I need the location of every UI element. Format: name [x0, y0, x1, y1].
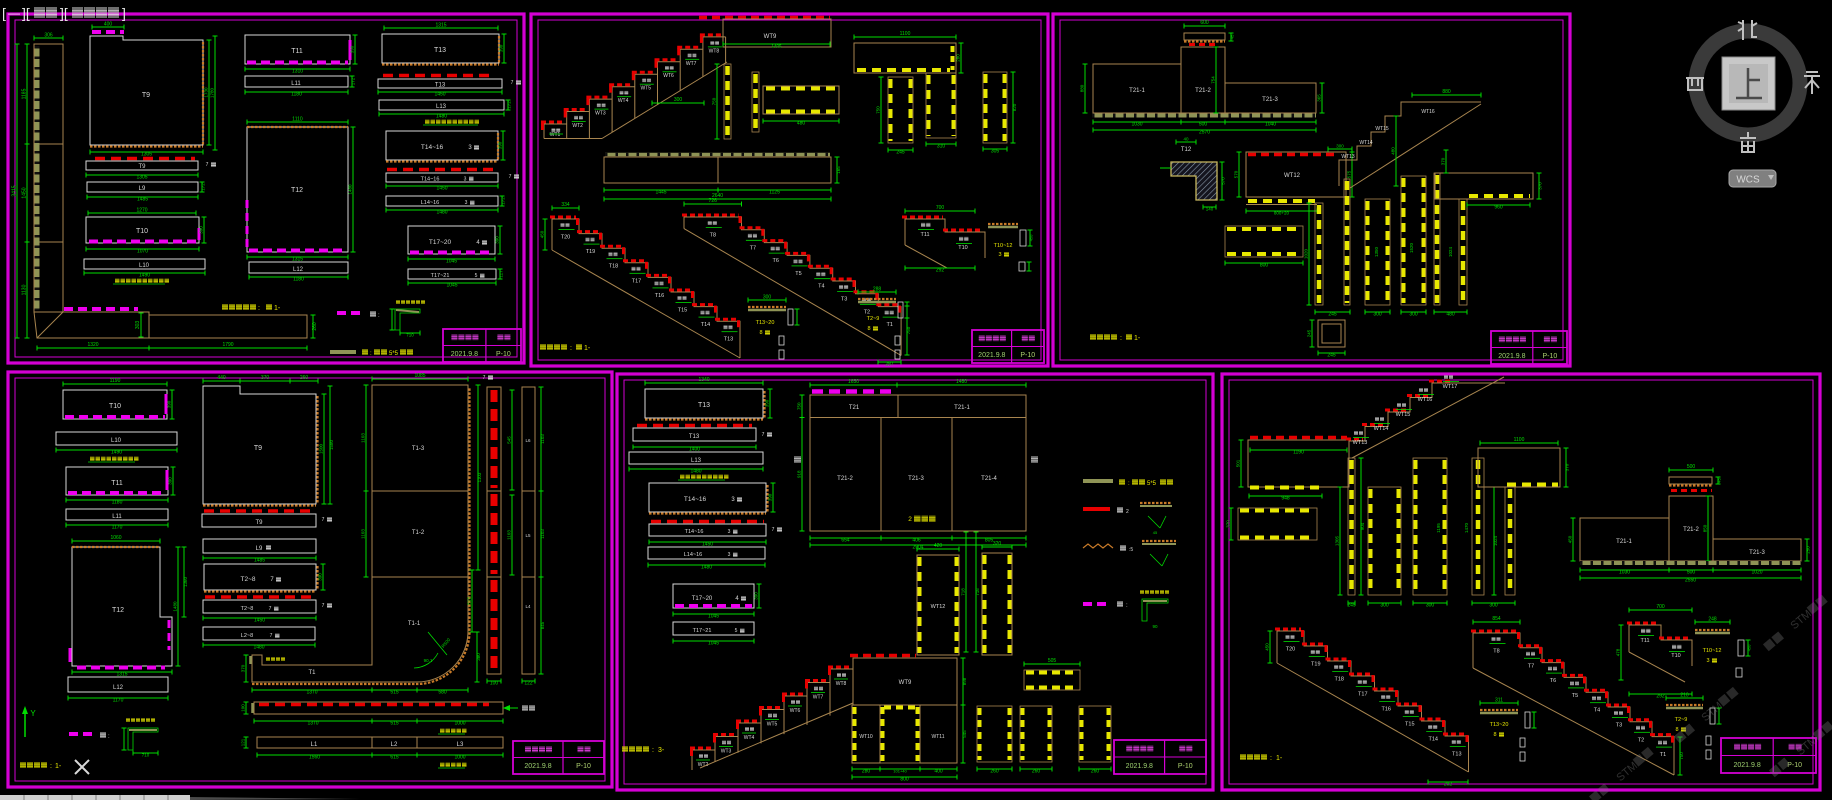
svg-text:710: 710: [142, 753, 150, 758]
svg-text:WT16: WT16: [1418, 397, 1433, 403]
svg-text:390: 390: [498, 141, 503, 149]
svg-text:T1-1: T1-1: [408, 621, 421, 627]
svg-text:1103: 1103: [361, 433, 366, 443]
svg-text:L13: L13: [436, 104, 447, 110]
svg-text:292: 292: [1656, 694, 1665, 700]
svg-text:245: 245: [1347, 603, 1356, 609]
svg-text:334: 334: [561, 202, 570, 208]
svg-text:1780: 1780: [210, 87, 215, 98]
svg-text:T13: T13: [698, 402, 710, 409]
svg-text:1480: 1480: [348, 184, 353, 195]
svg-text:1180: 1180: [112, 500, 123, 506]
svg-text:T17: T17: [632, 278, 641, 284]
svg-text:800+20: 800+20: [1274, 211, 1290, 216]
svg-text:600: 600: [1200, 20, 1209, 26]
svg-text:545: 545: [962, 730, 967, 738]
svg-text:T6: T6: [772, 258, 778, 264]
svg-text:T4: T4: [1594, 708, 1600, 714]
svg-text:1103: 1103: [477, 472, 482, 482]
svg-text:1170: 1170: [113, 698, 124, 704]
svg-text:505: 505: [1048, 658, 1057, 664]
svg-text:480: 480: [797, 121, 806, 127]
svg-text:172: 172: [507, 101, 512, 109]
svg-text:T17~21: T17~21: [693, 628, 712, 634]
svg-text:8: 8: [1493, 732, 1496, 738]
svg-text:1305: 1305: [141, 152, 152, 158]
svg-text:T2: T2: [1638, 737, 1644, 743]
svg-text:90: 90: [1152, 624, 1158, 629]
svg-text:948: 948: [1281, 496, 1290, 502]
svg-text:T13: T13: [689, 434, 700, 440]
svg-text:[: [: [2, 5, 6, 21]
svg-text:305: 305: [991, 149, 1000, 155]
svg-text:1103: 1103: [361, 529, 366, 539]
svg-text:370: 370: [261, 375, 270, 381]
svg-text:101+40: 101+40: [893, 769, 907, 774]
svg-text:2021.9.8: 2021.9.8: [978, 352, 1005, 359]
svg-text:480: 480: [1446, 312, 1455, 318]
svg-text:WT13: WT13: [1341, 154, 1355, 160]
svg-text:500: 500: [1687, 464, 1696, 470]
svg-text:320: 320: [993, 541, 1002, 547]
svg-text:T17~20: T17~20: [429, 239, 452, 246]
svg-text:654: 654: [841, 538, 850, 544]
svg-text:750: 750: [712, 97, 717, 105]
svg-text:L11: L11: [291, 81, 301, 87]
svg-text:T1: T1: [886, 322, 892, 328]
svg-text:T2: T2: [864, 309, 870, 315]
svg-text:245: 245: [1328, 312, 1337, 318]
svg-text:172: 172: [351, 77, 356, 85]
svg-text::: :: [1120, 335, 1122, 342]
svg-text:T15: T15: [678, 308, 687, 314]
svg-text:1445: 1445: [655, 190, 666, 196]
svg-text:250: 250: [1806, 546, 1811, 554]
svg-text:T13: T13: [434, 47, 446, 54]
svg-text:300: 300: [1380, 603, 1389, 609]
svg-text:300: 300: [1336, 144, 1344, 149]
svg-text:WT14: WT14: [1374, 426, 1389, 432]
svg-text:1360: 1360: [183, 576, 188, 587]
svg-text:1315: 1315: [435, 23, 446, 29]
svg-text:245: 245: [896, 150, 905, 156]
svg-text:L12: L12: [293, 267, 304, 273]
svg-text:3: 3: [998, 252, 1001, 258]
svg-text:1370: 1370: [306, 690, 317, 696]
svg-text:7: 7: [772, 527, 775, 533]
svg-text:5: 5: [735, 628, 738, 634]
svg-text:513: 513: [467, 597, 472, 605]
svg-text:292: 292: [1444, 782, 1453, 788]
svg-text:L10: L10: [111, 438, 122, 444]
svg-text:710: 710: [406, 333, 414, 338]
svg-text:T17: T17: [1358, 692, 1367, 698]
svg-text:T14~16: T14~16: [421, 177, 440, 183]
svg-text:390: 390: [754, 592, 759, 600]
svg-text:754: 754: [1211, 76, 1216, 84]
svg-text:45: 45: [1153, 530, 1158, 535]
svg-text:2904: 2904: [912, 545, 923, 551]
svg-text:T14: T14: [1428, 737, 1437, 743]
svg-text:WT4: WT4: [618, 98, 629, 104]
svg-text:L5: L5: [525, 533, 531, 538]
svg-text:P-10: P-10: [1543, 353, 1558, 360]
svg-text:390: 390: [318, 573, 323, 581]
svg-text:WT1: WT1: [550, 132, 561, 138]
svg-text:][: ][: [22, 5, 30, 21]
svg-text:2: 2: [1126, 509, 1129, 515]
svg-text:T10: T10: [1671, 653, 1680, 659]
svg-text:450: 450: [1568, 535, 1573, 543]
svg-text:380: 380: [476, 653, 481, 661]
svg-text:2570: 2570: [1199, 130, 1210, 136]
svg-text:T21-2: T21-2: [1683, 527, 1699, 533]
svg-text:450: 450: [1265, 643, 1270, 651]
svg-text:287: 287: [885, 362, 894, 368]
svg-text::: :: [1270, 755, 1272, 762]
svg-text:750: 750: [906, 326, 911, 334]
svg-text:T11: T11: [291, 48, 303, 55]
svg-text:1180: 1180: [293, 277, 304, 283]
svg-text:1730: 1730: [204, 87, 209, 98]
svg-text:2550: 2550: [1685, 578, 1696, 584]
svg-text:WT3: WT3: [595, 111, 606, 117]
svg-text:1405: 1405: [771, 44, 782, 49]
svg-text:T9: T9: [142, 92, 150, 99]
svg-text:1180: 1180: [291, 92, 302, 98]
svg-text:1450: 1450: [434, 92, 445, 98]
svg-text:1790: 1790: [222, 342, 233, 348]
svg-text:406: 406: [912, 538, 921, 544]
svg-text:T1: T1: [1660, 752, 1666, 758]
svg-text:2: 2: [908, 516, 912, 523]
svg-text:8: 8: [1675, 727, 1678, 733]
svg-text:T1-2: T1-2: [412, 530, 425, 536]
svg-text:T14~16: T14~16: [421, 144, 444, 151]
svg-text:P-10: P-10: [496, 351, 511, 358]
svg-text:3: 3: [728, 552, 731, 558]
svg-text:300: 300: [1409, 312, 1418, 318]
svg-text:1103: 1103: [540, 529, 545, 539]
svg-text:1370: 1370: [307, 721, 318, 727]
svg-text:718: 718: [961, 588, 966, 596]
svg-text:WT16: WT16: [1421, 109, 1435, 115]
svg-text:898: 898: [962, 677, 967, 685]
svg-text:880: 880: [1442, 89, 1451, 95]
svg-text:1305: 1305: [1335, 535, 1340, 546]
svg-text:1480: 1480: [173, 601, 178, 612]
svg-text:1030: 1030: [1619, 570, 1630, 576]
svg-text:300: 300: [763, 295, 772, 301]
svg-text:1125: 1125: [769, 190, 780, 196]
svg-text:1480: 1480: [956, 379, 967, 385]
svg-text:1485: 1485: [137, 197, 148, 203]
svg-text:P-10: P-10: [1787, 762, 1802, 769]
svg-text:1020: 1020: [1751, 570, 1762, 576]
svg-text:1000: 1000: [454, 755, 465, 761]
svg-text:420: 420: [934, 543, 943, 549]
svg-text:1045: 1045: [708, 641, 719, 647]
svg-text:1060: 1060: [110, 535, 121, 541]
svg-text:P-10: P-10: [1020, 352, 1035, 359]
svg-text:WT6: WT6: [663, 73, 674, 79]
svg-text:T18: T18: [1334, 677, 1343, 683]
svg-text:3: 3: [465, 200, 468, 206]
svg-text:—: —: [8, 6, 20, 20]
svg-text:45: 45: [1230, 34, 1235, 40]
svg-text:1024: 1024: [1493, 535, 1498, 546]
svg-text:T10: T10: [136, 228, 148, 235]
svg-text:210: 210: [1680, 693, 1689, 699]
svg-text:1270: 1270: [136, 208, 147, 214]
svg-text:T21-2: T21-2: [1195, 88, 1211, 94]
svg-text:T21-4: T21-4: [981, 476, 997, 482]
svg-text:904: 904: [1360, 522, 1365, 530]
svg-text:3: 3: [464, 177, 467, 183]
svg-text:WT12: WT12: [931, 604, 946, 610]
svg-text:T14~16: T14~16: [684, 496, 707, 503]
svg-text:T12: T12: [112, 607, 124, 614]
svg-text:WT14: WT14: [1359, 140, 1373, 146]
svg-text:T21-2: T21-2: [837, 476, 853, 482]
svg-text:800: 800: [1260, 263, 1269, 269]
svg-text:1170: 1170: [112, 525, 123, 531]
svg-text::: :: [50, 763, 52, 770]
svg-text:854: 854: [1492, 616, 1501, 622]
svg-text:][: ][: [60, 5, 68, 21]
svg-text:515: 515: [390, 721, 399, 727]
svg-text:260: 260: [1091, 769, 1100, 775]
svg-text:960: 960: [1494, 205, 1503, 211]
svg-text:570: 570: [1234, 170, 1239, 178]
svg-text:165: 165: [836, 166, 841, 174]
svg-text:1520: 1520: [1409, 242, 1414, 253]
svg-text:T12: T12: [1181, 147, 1192, 153]
svg-text:820: 820: [1012, 103, 1017, 111]
svg-text:390: 390: [199, 226, 204, 234]
svg-text:L11: L11: [112, 514, 122, 520]
svg-text:T2~9: T2~9: [867, 316, 880, 322]
svg-text:1085: 1085: [414, 373, 425, 379]
svg-text:260: 260: [1032, 769, 1041, 775]
svg-text:8: 8: [867, 326, 870, 332]
svg-text:T8: T8: [1493, 649, 1499, 655]
svg-text:2021.9.8: 2021.9.8: [1126, 763, 1153, 770]
svg-text:1110: 1110: [292, 117, 303, 123]
svg-text:370: 370: [241, 664, 246, 672]
svg-text:P-10: P-10: [1178, 763, 1193, 770]
svg-text:845: 845: [540, 621, 545, 629]
svg-text:T21: T21: [849, 405, 860, 411]
svg-text:WT8: WT8: [836, 681, 847, 687]
svg-text:40: 40: [1183, 137, 1189, 142]
svg-text:WT9: WT9: [899, 680, 912, 686]
svg-text:T10: T10: [109, 403, 121, 410]
svg-text:400: 400: [104, 22, 113, 28]
svg-text:L1: L1: [311, 742, 318, 748]
svg-text:WT6: WT6: [790, 708, 801, 714]
svg-text:100: 100: [241, 704, 246, 712]
svg-text:700: 700: [1656, 604, 1665, 610]
svg-text:1-: 1-: [274, 305, 281, 312]
svg-text:1195: 1195: [1436, 523, 1441, 533]
svg-text:T2~8: T2~8: [241, 576, 256, 583]
svg-text::: :: [258, 305, 260, 312]
svg-text:WT17: WT17: [1443, 384, 1458, 390]
svg-text:478: 478: [1616, 648, 1621, 656]
svg-text:2021.9.8: 2021.9.8: [1733, 762, 1760, 769]
svg-text:1560: 1560: [309, 755, 320, 761]
svg-text:390: 390: [168, 477, 173, 485]
svg-text:L10: L10: [139, 263, 150, 269]
svg-text:400: 400: [934, 769, 943, 775]
svg-text:1024: 1024: [1448, 246, 1453, 257]
svg-text:1310: 1310: [292, 69, 303, 75]
svg-text:1-: 1-: [1134, 335, 1141, 342]
svg-text:T14: T14: [701, 322, 710, 328]
svg-text:310: 310: [937, 144, 946, 150]
svg-text:WCS: WCS: [1736, 175, 1760, 186]
svg-text:WT12: WT12: [1284, 173, 1301, 179]
svg-text:WT10: WT10: [859, 734, 873, 740]
svg-text:450: 450: [1747, 644, 1752, 651]
svg-text::: :: [570, 345, 572, 352]
svg-text:WT11: WT11: [932, 734, 945, 740]
svg-text:716: 716: [975, 588, 980, 596]
svg-text:T7: T7: [750, 245, 756, 251]
svg-text:T17~21: T17~21: [431, 273, 450, 279]
svg-text:7: 7: [511, 80, 514, 86]
svg-text:1020: 1020: [1304, 248, 1309, 259]
svg-text:T21-1: T21-1: [1616, 539, 1632, 545]
svg-text:T13: T13: [724, 337, 733, 343]
svg-text:1190: 1190: [1293, 450, 1304, 456]
svg-text:T17~20: T17~20: [692, 596, 713, 602]
svg-text:280: 280: [862, 769, 871, 775]
svg-text:1500: 1500: [319, 443, 324, 454]
svg-text:T20: T20: [1286, 647, 1295, 653]
svg-text:WT13: WT13: [1353, 440, 1368, 446]
svg-text:1130: 1130: [22, 284, 28, 295]
svg-text:1-: 1-: [584, 345, 591, 352]
svg-text:T12: T12: [291, 187, 303, 194]
svg-text:WT15: WT15: [1375, 126, 1389, 132]
svg-text:7: 7: [322, 517, 325, 523]
svg-text:1103: 1103: [540, 434, 545, 444]
svg-text:T6: T6: [1550, 678, 1556, 684]
svg-text:Y: Y: [30, 709, 36, 718]
svg-text:T19: T19: [1311, 662, 1320, 668]
svg-text:T21-1: T21-1: [1129, 88, 1145, 94]
svg-text:3: 3: [728, 529, 731, 535]
svg-text:T18: T18: [609, 264, 618, 270]
svg-text:L2~8: L2~8: [241, 633, 253, 639]
svg-text:2021.9.8: 2021.9.8: [524, 763, 551, 770]
svg-text:L3: L3: [457, 742, 464, 748]
svg-text:1185: 1185: [22, 88, 28, 99]
svg-text:T20: T20: [561, 235, 570, 241]
svg-text::: :: [652, 747, 654, 754]
svg-text:T13~20: T13~20: [1490, 722, 1509, 728]
svg-text:L9: L9: [139, 186, 146, 192]
svg-text:390: 390: [350, 45, 355, 53]
svg-text:WT4: WT4: [744, 735, 755, 741]
svg-text:T11: T11: [920, 232, 929, 238]
svg-text:WT7: WT7: [686, 61, 697, 67]
svg-text:7: 7: [762, 432, 765, 438]
svg-text:122: 122: [524, 681, 533, 687]
svg-text:390: 390: [495, 236, 500, 244]
svg-text:5*5: 5*5: [389, 351, 399, 357]
svg-text:1030: 1030: [1131, 122, 1142, 128]
svg-text:117: 117: [499, 270, 504, 278]
svg-text:7: 7: [270, 633, 273, 639]
svg-text:T3: T3: [841, 297, 847, 303]
svg-text:T10~12: T10~12: [994, 243, 1013, 249]
svg-text:515: 515: [390, 690, 399, 696]
svg-text:172: 172: [201, 183, 206, 191]
svg-text:T21-3: T21-3: [1262, 97, 1278, 103]
svg-text:750: 750: [797, 402, 802, 410]
svg-text:1340: 1340: [698, 377, 709, 383]
svg-text:T16: T16: [655, 293, 664, 299]
svg-text:440: 440: [217, 375, 226, 381]
svg-text:3415: 3415: [12, 185, 18, 196]
svg-text:P-10: P-10: [576, 763, 591, 770]
svg-text:L14~16: L14~16: [684, 552, 703, 558]
svg-text:T8: T8: [710, 233, 716, 239]
svg-text:3-: 3-: [658, 747, 665, 754]
svg-text:288: 288: [873, 287, 882, 293]
svg-text:280: 280: [956, 54, 961, 62]
svg-text:918: 918: [797, 470, 802, 478]
svg-text:370: 370: [1565, 463, 1570, 471]
svg-text:L4: L4: [525, 604, 531, 609]
svg-text:245: 245: [1327, 353, 1336, 359]
svg-text:7: 7: [322, 603, 325, 609]
svg-text:1490: 1490: [139, 273, 150, 279]
svg-text:1450: 1450: [436, 186, 447, 192]
svg-text:1450: 1450: [254, 618, 265, 624]
svg-text:1480: 1480: [690, 469, 701, 475]
svg-text:700: 700: [936, 205, 945, 211]
svg-text:390: 390: [499, 44, 504, 52]
svg-text:L13: L13: [691, 458, 702, 464]
svg-text:T5: T5: [795, 271, 801, 277]
svg-text:1485: 1485: [254, 558, 265, 564]
svg-text:WT8: WT8: [709, 48, 720, 54]
svg-text:850: 850: [1703, 524, 1708, 532]
svg-text:T7: T7: [1528, 663, 1534, 669]
svg-text:1305: 1305: [136, 175, 147, 181]
svg-text:L6: L6: [525, 438, 531, 443]
svg-text:1480: 1480: [701, 565, 712, 571]
svg-text:1100: 1100: [1514, 437, 1525, 443]
svg-text:1350: 1350: [1374, 246, 1379, 257]
svg-text:]: ]: [122, 5, 126, 21]
svg-text:300: 300: [1373, 312, 1382, 318]
svg-text:WT5: WT5: [641, 86, 652, 92]
svg-text:303: 303: [135, 321, 141, 330]
svg-text:T19: T19: [586, 249, 595, 255]
svg-text:T14~16: T14~16: [685, 529, 704, 535]
svg-text:WT3: WT3: [721, 749, 732, 755]
svg-text:365: 365: [1317, 94, 1322, 102]
svg-text:T10: T10: [958, 245, 967, 251]
svg-text:T13: T13: [435, 83, 446, 89]
svg-text:WT9: WT9: [764, 34, 777, 40]
svg-text:7: 7: [509, 174, 512, 180]
